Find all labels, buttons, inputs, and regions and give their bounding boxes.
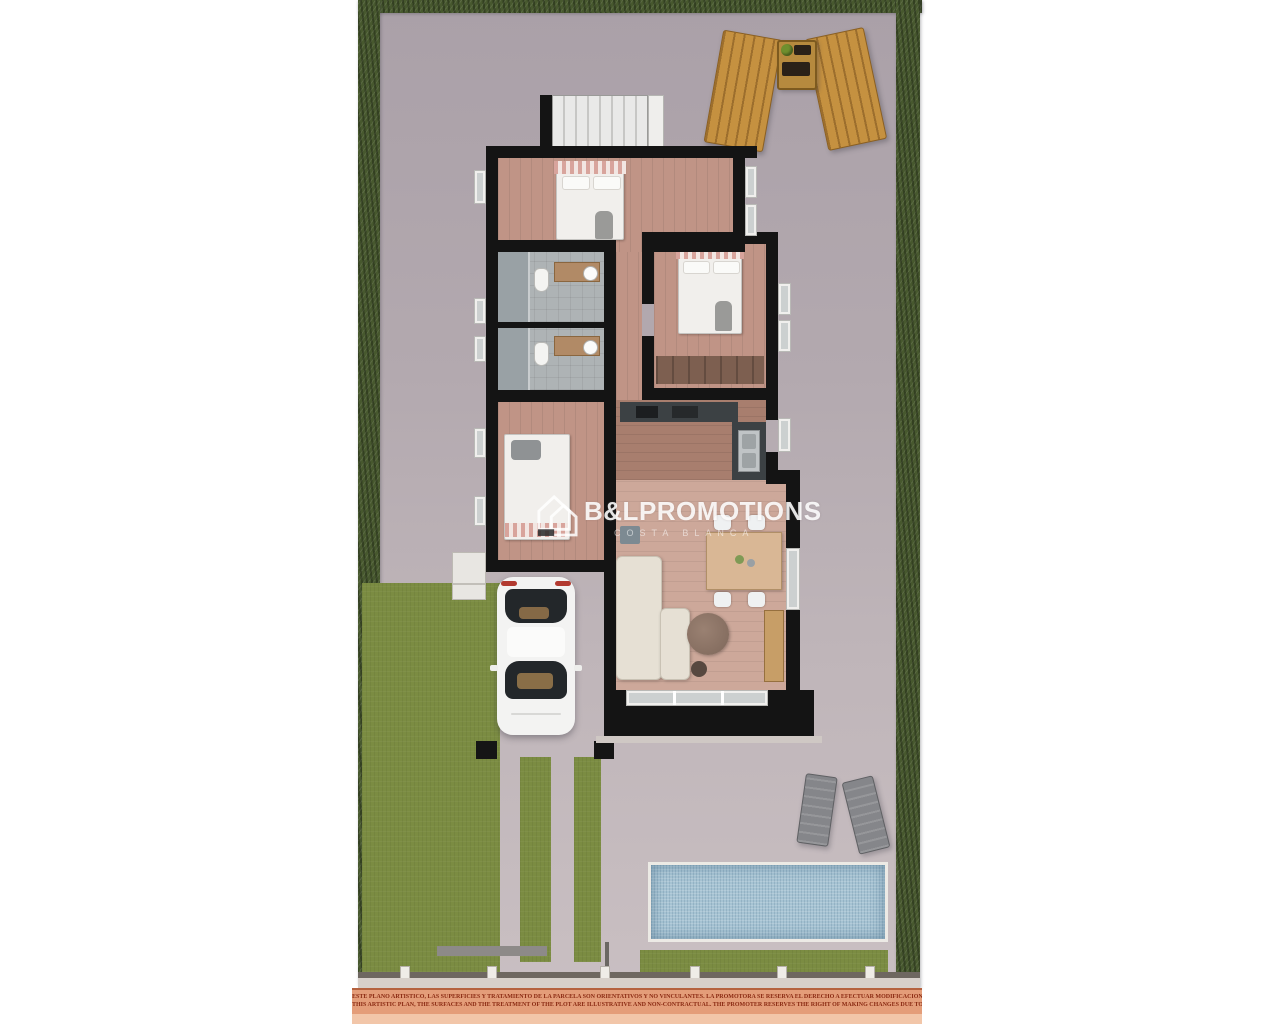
bathroom1-shower [498,252,530,322]
porch-step [453,583,485,585]
wall-top [486,146,757,158]
car-mirror-right [574,665,582,671]
table-decor-2 [747,559,755,567]
disclaimer-strip-light [352,1014,922,1024]
kitchen-counter-top [620,402,738,422]
kitchen-hob [636,406,658,418]
car-roof [507,627,565,657]
table-plant [781,44,793,56]
car [497,577,575,735]
window-bedroom1-east-2 [745,204,757,236]
bed2-pillow-right [713,261,740,274]
bed-double-bedroom2 [678,248,742,334]
pouf [691,661,707,677]
bathroom2-toilet [534,342,549,366]
terrace-edge [596,736,822,743]
dining-chair-4 [748,592,765,607]
watermark-subtitle: COSTA BLANCA [614,528,754,538]
bathroom1-vanity [554,262,600,282]
table-decor-1 [735,555,744,564]
window-kitchen-east [778,418,791,452]
wall-living-south-corner-right [768,690,814,706]
gate-post-right [594,741,614,759]
wall-corridor-east [604,252,616,706]
car-windshield [505,661,567,699]
lawn-main [362,583,500,972]
table-tray-2 [782,62,810,76]
car-dashboard [517,673,553,689]
car-mirror-left [490,665,498,671]
stair-side-wall [540,95,552,147]
round-rug [687,613,729,655]
house-logo-icon [536,490,578,543]
entrance-stairs [552,95,648,147]
hedge-top [358,0,922,13]
wall-bedroom3-south [486,560,616,572]
site-plan: B&LPROMOTIONS COSTA BLANCA ESTE PLANO AR… [352,0,922,1024]
wall-living-south-band [604,706,814,736]
watermark-brand: B&LPROMOTIONS [584,496,822,527]
bed1-pillow-right [593,176,621,190]
wall-bedroom2-west [642,244,654,304]
wall-west [486,146,498,572]
bathroom1-basin [583,266,598,281]
grass-strip-1 [520,757,551,962]
bathroom2-basin [583,340,598,355]
sofa-seat [660,608,690,680]
window-west-bedroom3-2 [474,496,486,526]
kitchen-sink [738,430,760,472]
bed1-throw [595,211,613,239]
fence-base-band [358,978,920,988]
wall-bedroom2-south [642,388,778,400]
hallway-floor [616,252,642,400]
bed2-throw [715,301,732,331]
pool-grass-strip [640,950,888,974]
wall-bedroom1-south-left [486,240,616,252]
bedroom2-wardrobe [656,356,764,384]
watermark: B&LPROMOTIONS COSTA BLANCA [536,488,866,550]
disclaimer-line-english: THIS ARTISTIC PLAN, THE SURFACES AND THE… [352,1001,922,1009]
car-rear-deck [519,607,549,619]
sink-bowl-bottom [742,453,756,468]
window-west-bath2 [474,336,486,362]
window-bedroom1-east-1 [745,166,757,198]
disclaimer-line-spanish: ESTE PLANO ARTISTICO, LAS SUPERFICIES Y … [352,993,922,1001]
wall-living-east-lower [786,610,800,692]
sofa-chaise [616,556,662,680]
car-rear-window [505,589,567,623]
bed1-headboard [554,161,626,174]
bed-double-bedroom1 [556,162,624,240]
wall-bath-divider [498,322,604,328]
bed2-pillow-left [683,261,710,274]
driveway-curb [437,946,547,956]
car-taillight-right [555,581,571,586]
gate-post-left [476,741,497,759]
window-bedroom2-east-2 [778,320,791,352]
disclaimer-strip: ESTE PLANO ARTISTICO, LAS SUPERFICIES Y … [352,988,922,1014]
wall-kitchen-east [766,400,778,420]
wall-living-south-corner-left [604,690,626,706]
side-table [777,40,817,90]
tv-sideboard [764,610,784,682]
wall-bedroom2-east [766,244,778,388]
car-hood-line [511,713,561,715]
window-west-bath1 [474,298,486,324]
window-west-bedroom1 [474,170,486,204]
grass-strip-2 [574,757,601,962]
window-bedroom2-east-1 [778,283,791,315]
sink-bowl-top [742,434,756,449]
table-tray-1 [794,45,811,55]
bed1-pillow-left [562,176,590,190]
wall-bedroom2-north [642,232,778,244]
window-living-east [786,548,800,610]
swimming-pool [648,862,888,942]
bathroom2-vanity [554,336,600,356]
car-taillight-left [501,581,517,586]
floor-plan-render: B&LPROMOTIONS COSTA BLANCA ESTE PLANO AR… [0,0,1280,1024]
window-living-south-sliders [626,690,768,706]
bathroom1-toilet [534,268,549,292]
wall-bath2-south [486,390,604,402]
kitchen-appliance [672,406,698,418]
bathroom2-shower [498,328,530,390]
slider-mullion-2 [721,691,724,705]
slider-mullion-1 [673,691,676,705]
hedge-right [896,0,920,988]
dining-chair-3 [714,592,731,607]
bed3-pillow [511,440,541,460]
porch-slab [452,552,486,600]
stair-landing [648,95,664,147]
window-west-bedroom3-1 [474,428,486,458]
